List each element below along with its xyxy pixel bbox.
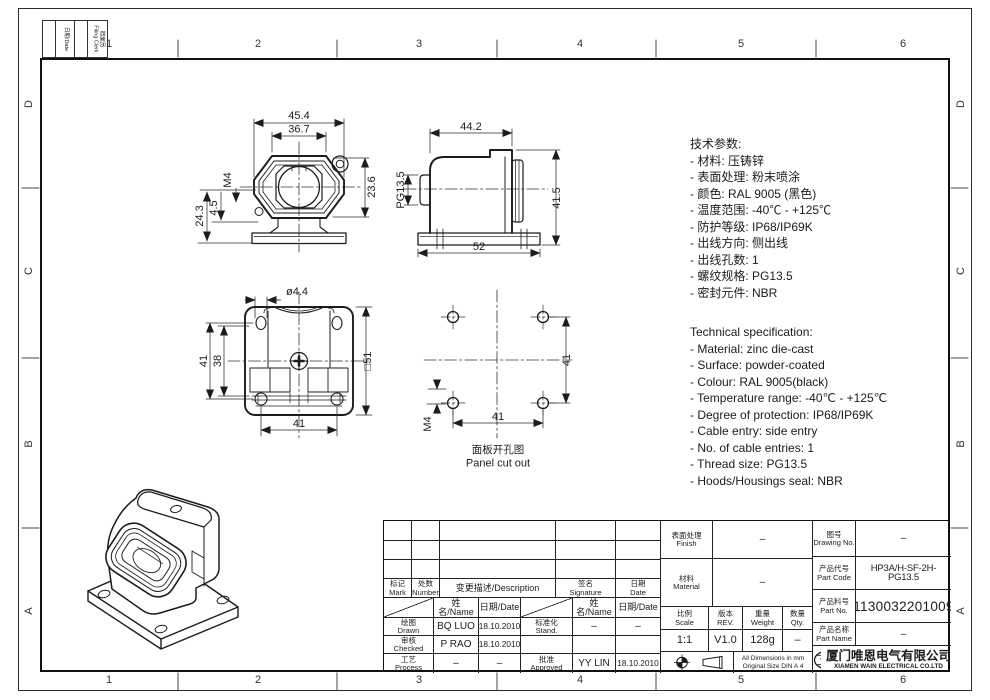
company-cell: WAIN 厦门唯恩电气有限公司 XIAMEN WAIN ELECTRICAL C… [813,646,951,673]
spec-line: - 密封元件: NBR [690,285,965,302]
rev-empty-cell [556,521,616,541]
spec-line: - 螺纹规格: PG13.5 [690,268,965,285]
process-label: 工艺Process [384,654,434,673]
stand-label: 标准化Stand. [521,618,573,636]
first-angle-projection-icon [670,654,694,671]
rev-empty-cell [412,560,440,579]
spec-line: - 表面处理: 粉末喷涂 [690,169,965,186]
spec-line: - 材料: 压铸锌 [690,153,965,170]
dim-24-3: 24.3 [194,205,206,226]
finish-label: 表面处理Finish [661,521,713,559]
dim-44-2: 44.2 [460,121,481,133]
part-no-value: 1130032201009 [856,590,951,623]
rev-label: 版本REV. [709,607,743,630]
diagonal-cell [384,598,434,618]
date-header-1: 日期/Date [479,598,521,618]
rev-empty-cell [412,521,440,541]
diagonal-cell [521,598,573,618]
finish-value: – [713,521,813,559]
drawing-no-value: – [856,521,951,557]
approved-date: 18.10.2010 [616,654,661,673]
process-name: – [434,654,479,673]
rev-empty-cell [412,541,440,560]
engineering-drawing-sheet: 123456 123456 DCBA DCBA 日期/Date 档案员Filin… [0,0,990,700]
dim-m4: M4 [422,416,434,431]
rev-empty-cell [616,521,661,541]
dim-52: 52 [473,241,485,253]
panel-cutout-view: 41 41 M4 面板开孔图 Panel cut out [422,290,573,470]
side-view: 44.2 52 41.5 PG13.5 [395,121,563,257]
spec-line: - 颜色: RAL 9005 (黑色) [690,186,965,203]
dim-23-6: 23.6 [366,176,378,197]
rev-empty-cell [616,560,661,579]
spec-line: - Material: zinc die-cast [690,341,965,358]
rev-empty-cell [616,541,661,560]
company-name-en: XIAMEN WAIN ELECTRICAL CO.LTD [826,663,951,670]
rev-header-signature: 签名Signature [556,579,616,598]
rev-value: V1.0 [709,630,743,652]
process-date: – [479,654,521,673]
rev-header-mark: 标记Mark [384,579,412,598]
part-name-value: – [856,623,951,646]
rev-empty-cell [384,521,412,541]
material-value: – [713,559,813,607]
drawing-no-label: 图号Drawing No. [813,521,856,557]
qty-value: – [783,630,813,652]
drawn-name: BQ LUO [434,618,479,636]
dim-dia-4-4: ø4.4 [286,286,308,298]
tech-specs-chinese: 技术参数: - 材料: 压铸锌- 表面处理: 粉末喷涂- 颜色: RAL 900… [690,136,965,301]
dim-36-7: 36.7 [288,124,309,136]
checked-name: P RAO [434,636,479,654]
approved-name: YY LIN [573,654,616,673]
company-name-cn: 厦门唯恩电气有限公司 [826,650,951,663]
scale-value: 1:1 [661,630,709,652]
rev-header-date: 日期Date [616,579,661,598]
dim-41-bottom: 41 [492,411,504,423]
part-code-label: 产品代号Part Code [813,557,856,590]
dim-pg13-5: PG13.5 [395,171,407,208]
dim-38: 38 [212,355,224,367]
empty-cell [573,636,616,654]
dim-4-5: 4.5 [208,200,220,215]
front-view: 45.4 36.7 23.6 M4 4.5 24.3 [194,110,378,252]
rev-empty-cell [556,541,616,560]
checked-label: 审核Checked [384,636,434,654]
spec-line: - Degree of protection: IP68/IP69K [690,407,965,424]
part-code-value: HP3A/H-SF-2H-PG13.5 [856,557,951,590]
spec-line: - Hoods/Housings seal: NBR [690,473,965,490]
drawn-label: 绘图Drawn [384,618,434,636]
drawn-date: 18.10.2010 [479,618,521,636]
rev-empty-cell [440,521,556,541]
wain-logo: WAIN [813,649,821,671]
bottom-view: ø4.4 41 38 □51 41 [198,286,374,438]
tech-specs-english: Technical specification: - Material: zin… [690,324,965,489]
stand-name: – [573,618,616,636]
weight-value: 128g [743,630,783,652]
company-names: 厦门唯恩电气有限公司 XIAMEN WAIN ELECTRICAL CO.LTD [826,650,951,670]
panel-caption-en: Panel cut out [466,458,530,470]
empty-cell [616,636,661,654]
title-block: 标记Mark 处数Number 变更描述/Description 签名Signa… [383,520,950,672]
projection-symbols-cell [661,652,734,673]
spec-line: - 温度范围: -40℃ - +125℃ [690,202,965,219]
tech-specs-en-title: Technical specification: [690,324,965,341]
weight-label: 重量Weight [743,607,783,630]
dim-square-51: □51 [362,352,374,371]
spec-line: - 出线孔数: 1 [690,252,965,269]
rev-empty-cell [384,541,412,560]
qty-label: 数量Qty. [783,607,813,630]
wain-logo-text: WAIN [820,655,821,664]
dimensions-note: All Dimensions in mmOriginal Size DIN A … [734,652,813,673]
approved-label: 批准Approved [521,654,573,673]
rev-empty-cell [384,560,412,579]
dim-41-right: 41 [561,354,573,366]
spec-line: - Temperature range: -40℃ - +125℃ [690,390,965,407]
dim-m4: M4 [222,172,234,187]
date-header-2: 日期/Date [616,598,661,618]
truncated-cone-projection-icon [701,655,725,670]
part-name-label: 产品名称Part Name [813,623,856,646]
dim-41-5: 41.5 [551,187,563,208]
spec-line: - 出线方向: 侧出线 [690,235,965,252]
dim-41-bottom: 41 [293,418,305,430]
name-header-1: 姓名/Name [434,598,479,618]
dim-45-4: 45.4 [288,110,309,122]
spec-line: - Thread size: PG13.5 [690,456,965,473]
part-no-label: 产品料号Part No. [813,590,856,623]
rev-header-number: 处数Number [412,579,440,598]
dim-41-left: 41 [198,355,210,367]
checked-date: 18.10.2010 [479,636,521,654]
isometric-view [88,490,238,649]
rev-empty-cell [440,541,556,560]
stand-date: – [616,618,661,636]
spec-line: - Surface: powder-coated [690,357,965,374]
scale-label: 比例Scale [661,607,709,630]
material-label: 材料Material [661,559,713,607]
spec-line: - Colour: RAL 9005(black) [690,374,965,391]
name-header-2: 姓名/Name [573,598,616,618]
spec-line: - Cable entry: side entry [690,423,965,440]
tech-specs-cn-title: 技术参数: [690,136,965,153]
empty-cell [521,636,573,654]
rev-empty-cell [556,560,616,579]
spec-line: - 防护等级: IP68/IP69K [690,219,965,236]
spec-line: - No. of cable entries: 1 [690,440,965,457]
rev-header-description: 变更描述/Description [440,579,556,598]
rev-empty-cell [440,560,556,579]
panel-caption-cn: 面板开孔图 [472,443,525,456]
